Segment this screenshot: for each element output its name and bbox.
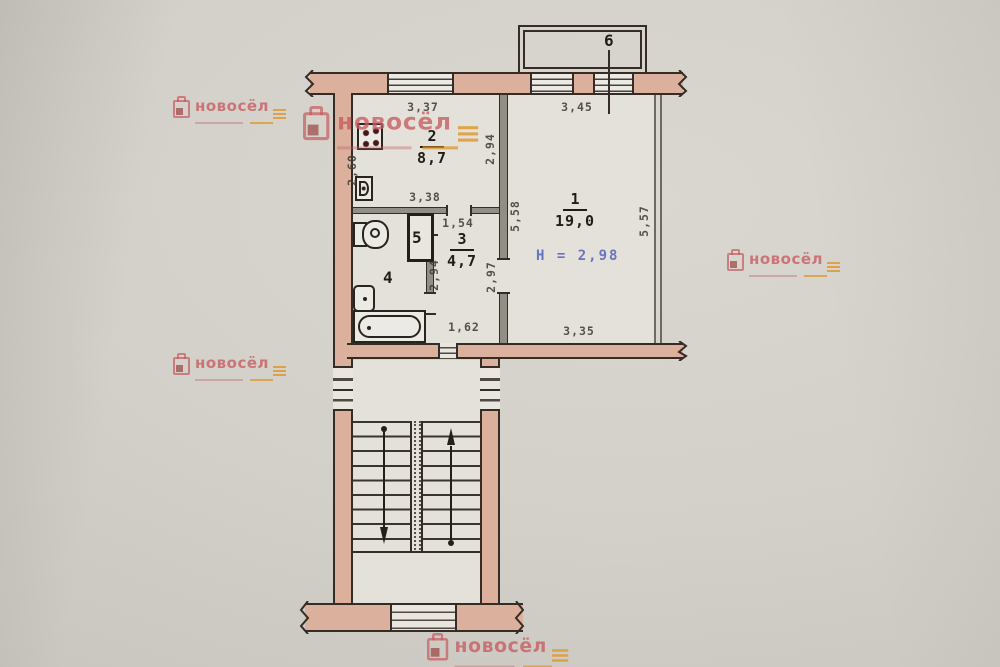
bathtub-icon [353,310,426,343]
dim-room1-right: 5,57 [637,199,651,243]
toilet-icon [353,220,386,246]
watermark-text: новосёл [195,354,269,372]
novosel-watermark: новосёл [173,96,286,124]
kitchen-door-jamb-right [470,205,472,216]
stair-stringer [410,421,423,553]
novosel-watermark: новосёл [173,353,286,381]
dim-kitchen-right: 2,94 [483,127,497,171]
stairwell-bottom-wall [305,603,523,632]
wall-break-stairs-left [298,601,310,634]
balcony-outline [518,25,647,74]
bottom-wall-left [347,343,438,359]
wall-break-top-right [677,70,689,97]
stairwell-bottom-window [390,605,457,630]
wall-break-stairs-right [514,601,526,634]
room1-door-jamb-bottom [497,292,510,294]
novosel-watermark: новосёл [427,633,568,667]
floor-plan-photo: 6 [0,0,1000,667]
room-number-balcony: 6 [604,31,614,50]
kitchen-wall-right [472,207,499,214]
dim-hall-top: 1,54 [436,216,480,230]
stairwell-left-wall [333,359,353,603]
room1-window-left [530,74,574,93]
room1-partition-lower [499,294,508,343]
washbasin-icon [353,285,375,312]
room4-label: 4 [383,268,393,287]
stairs-up-arrow-head [447,428,455,445]
bottom-wall-right [458,343,683,359]
wall-break-top-left [303,70,315,97]
right-partition-line-inner [660,95,662,343]
stairwell-mid-window-2 [480,389,500,411]
balcony-leader-line [608,50,610,114]
watermark-text: новосёл [455,634,548,657]
stairwell-mid-wall [480,359,500,603]
stairs-up-arrow-line [450,446,452,542]
dim-hall-left: 2,94 [427,253,441,297]
watermark-text: новосёл [749,250,823,268]
watermark-text: новосёл [337,108,452,136]
novosel-bag-icon [173,357,190,375]
room3-label: 3 4,7 [444,231,480,269]
stairwell-left-window-2 [333,389,353,411]
room1-partition-upper [499,95,508,260]
room1-label: 1 19,0 [546,191,604,229]
dim-kitchen-bottom: 3,38 [401,190,449,204]
novosel-bag-icon [427,638,448,661]
dim-room1-window: 3,45 [554,100,600,114]
stairs-down-arrow-head [380,527,388,544]
wall-break-bottom-right [677,341,689,361]
novosel-bag-icon [303,112,329,140]
dim-room1-left: 5,58 [508,194,522,238]
ceiling-height-stamp: Н = 2,98 [536,248,619,264]
dim-room1-bottom: 3,35 [554,324,604,338]
top-exterior-wall [310,72,683,95]
kitchen-door-jamb-left [446,205,448,216]
kitchen-window [387,74,454,93]
room1-door-jamb-top [497,258,510,260]
stair-landing-edge [353,551,480,553]
stairs-down-arrow-line [383,430,385,529]
novosel-bag-icon [727,253,744,271]
right-partition-line-outer [654,95,656,343]
dim-hall-bottom: 1,62 [443,320,485,334]
watermark-text: новосёл [195,97,269,115]
novosel-watermark: новосёл [727,249,840,277]
entrance-door-opening [438,343,458,359]
room5-label: 5 [412,228,422,247]
dim-hall-right: 2,97 [484,255,498,299]
novosel-watermark: новосёл [303,106,478,149]
novosel-bag-icon [173,100,190,118]
dim-kitchen-left: 2,60 [345,148,359,192]
room1-window-right [593,74,634,93]
